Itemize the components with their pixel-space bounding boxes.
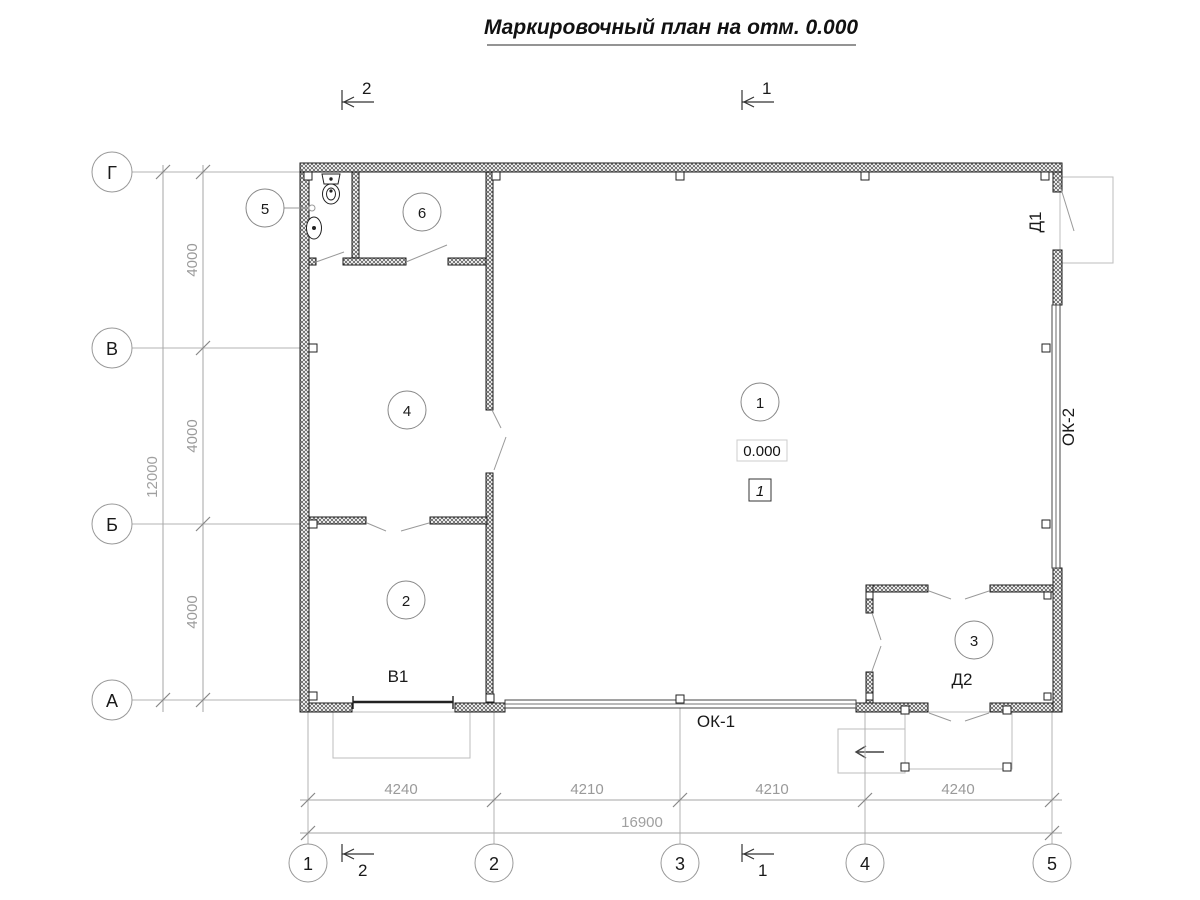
- wall-exterior-bottom-seg1: [309, 703, 352, 712]
- entry-ramp: [838, 729, 905, 773]
- door-vestibule-top-leaf-1: [929, 591, 951, 599]
- dim-bottom-total: 16900: [621, 814, 663, 831]
- wall-exterior-bottom-seg2: [455, 703, 505, 712]
- gate-v1-apron: [333, 712, 470, 758]
- door-d1-landing: [1060, 177, 1113, 263]
- axis-circles-bottom: 1 2 3 4 5: [289, 844, 1071, 882]
- entry-direction-arrow: [856, 746, 884, 758]
- elevation-value: 0.000: [743, 443, 781, 460]
- wall-vestibule-bottom-right: [990, 703, 1053, 712]
- wall-exterior-right-bottom: [1053, 568, 1062, 712]
- wall-exterior-top: [300, 163, 1062, 172]
- outside-slabs: [333, 177, 1113, 773]
- wall-room2-top-right: [430, 517, 487, 524]
- window-ok2-label: ОК-2: [1059, 408, 1078, 446]
- axis-circles-left: Г В Б А: [92, 152, 132, 720]
- room-number: 5: [261, 201, 269, 218]
- axis-col-label: 3: [675, 854, 685, 874]
- wall-hall-separator-lower: [486, 473, 493, 703]
- section-label-bottom-right: 1: [758, 861, 767, 880]
- dim-bottom-2: 4210: [570, 781, 603, 798]
- wall-wc-right: [352, 172, 359, 258]
- wall-room6-bottom-right: [448, 258, 487, 265]
- wall-vestibule-bottom-left: [856, 703, 928, 712]
- dim-bottom-1: 4240: [384, 781, 417, 798]
- door-d1-label: Д1: [1026, 212, 1045, 233]
- drawing-sheet: Маркировочный план на отм. 0.000: [0, 0, 1200, 900]
- section-label-top-right: 1: [762, 79, 771, 98]
- axis-row-label: А: [106, 691, 118, 711]
- joint-markers: [304, 172, 1051, 771]
- room-number: 6: [418, 205, 426, 222]
- dim-left-2: 4000: [184, 419, 201, 452]
- door-hall-leaf-1: [492, 410, 501, 428]
- window-ok1-label: ОК-1: [697, 712, 735, 731]
- door-room2-leaf-1: [367, 523, 386, 531]
- axis-col-label: 4: [860, 854, 870, 874]
- wall-hall-separator-upper: [486, 172, 493, 410]
- wall-room2-top-left: [309, 517, 366, 524]
- room-number: 2: [402, 593, 410, 610]
- wall-room6-bottom-left: [343, 258, 406, 265]
- room-number: 4: [403, 403, 411, 420]
- gate-v1: [353, 696, 453, 709]
- walls: [300, 163, 1062, 712]
- door-vestibule-top-leaf-2: [965, 591, 989, 599]
- axis-col-label: 1: [303, 854, 313, 874]
- axis-extension-lines: [132, 172, 1052, 844]
- door-room2-leaf-2: [401, 523, 429, 531]
- door-d2-leaf-2: [965, 713, 989, 721]
- axis-col-label: 5: [1047, 854, 1057, 874]
- wall-vestibule-top-left: [866, 585, 928, 592]
- room5-leader-dot: [309, 205, 315, 211]
- section-label-top-left: 2: [362, 79, 371, 98]
- door-wc-leaf: [316, 252, 344, 262]
- wall-exterior-left: [300, 172, 309, 712]
- entry-porch: [905, 712, 1012, 769]
- floor-plan-drawing: Маркировочный план на отм. 0.000: [0, 0, 1200, 900]
- dimension-lines: [163, 165, 1062, 833]
- door-room6-leaf: [406, 245, 447, 262]
- zone-number: 1: [756, 483, 764, 500]
- axis-row-label: В: [106, 339, 118, 359]
- door-hall-leaf-2: [494, 437, 506, 470]
- dim-left-1: 4000: [184, 243, 201, 276]
- dim-bottom-4: 4240: [941, 781, 974, 798]
- door-d2-leaf-1: [929, 713, 951, 721]
- room-number: 1: [756, 395, 764, 412]
- dim-bottom-3: 4210: [755, 781, 788, 798]
- dim-left-3: 4000: [184, 595, 201, 628]
- dim-left-total: 12000: [144, 456, 161, 498]
- wall-exterior-right-mid: [1053, 250, 1062, 305]
- axis-col-label: 2: [489, 854, 499, 874]
- wall-wc-door-stub: [309, 258, 316, 265]
- door-vestibule-left-leaf-1: [872, 613, 881, 640]
- section-label-bottom-left: 2: [358, 861, 367, 880]
- door-d2-label: Д2: [952, 670, 973, 689]
- dimension-ticks: [156, 165, 1059, 840]
- door-vestibule-left-leaf-2: [872, 646, 881, 671]
- axis-row-label: Б: [106, 515, 118, 535]
- wall-vestibule-top-right: [990, 585, 1053, 592]
- gate-v1-label: В1: [388, 667, 409, 686]
- axis-row-label: Г: [107, 163, 117, 183]
- drawing-title: Маркировочный план на отм. 0.000: [484, 16, 858, 39]
- room-number: 3: [970, 633, 978, 650]
